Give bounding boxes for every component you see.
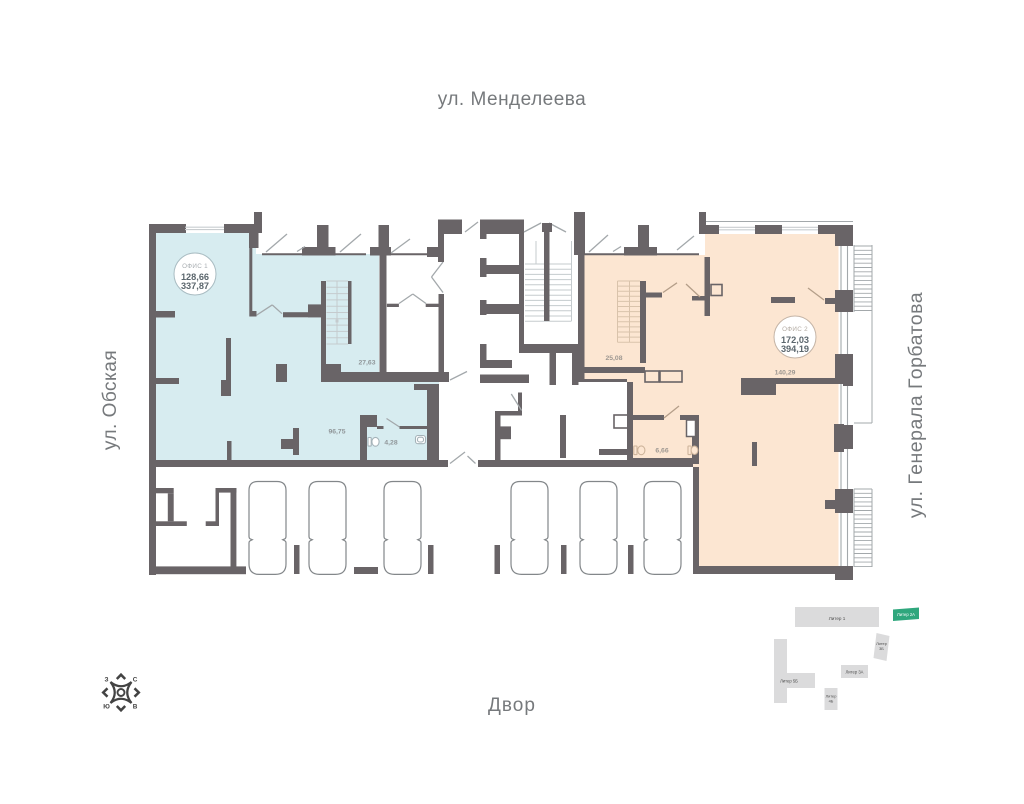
svg-text:ул. Менделеева: ул. Менделеева [438, 89, 587, 110]
svg-text:96,75: 96,75 [328, 429, 345, 436]
svg-text:ул. Обская: ул. Обская [100, 350, 121, 450]
svg-text:3Б: 3Б [879, 646, 884, 651]
svg-text:394,19: 394,19 [781, 344, 809, 354]
svg-text:Литер 5Б: Литер 5Б [780, 679, 798, 684]
svg-text:Ю: Ю [103, 704, 110, 711]
svg-text:140,29: 140,29 [775, 370, 796, 377]
svg-text:27,63: 27,63 [358, 360, 375, 367]
svg-text:Литер 3А: Литер 3А [846, 669, 864, 674]
svg-text:Двор: Двор [488, 695, 536, 716]
svg-text:25,08: 25,08 [605, 355, 622, 362]
svg-text:6,66: 6,66 [655, 448, 668, 455]
svg-text:4Б: 4Б [829, 699, 834, 704]
svg-text:С: С [133, 677, 138, 684]
svg-text:337,87: 337,87 [181, 281, 209, 291]
svg-text:ул. Генерала Горбатова: ул. Генерала Горбатова [905, 292, 927, 518]
svg-text:4,28: 4,28 [384, 440, 397, 447]
svg-text:Литер 2А: Литер 2А [897, 612, 915, 617]
svg-text:В: В [133, 704, 138, 711]
svg-text:ОФИС 1: ОФИС 1 [182, 263, 208, 270]
svg-text:Литер 1: Литер 1 [829, 616, 846, 621]
svg-text:З: З [104, 677, 108, 684]
svg-text:ОФИС 2: ОФИС 2 [782, 326, 808, 333]
